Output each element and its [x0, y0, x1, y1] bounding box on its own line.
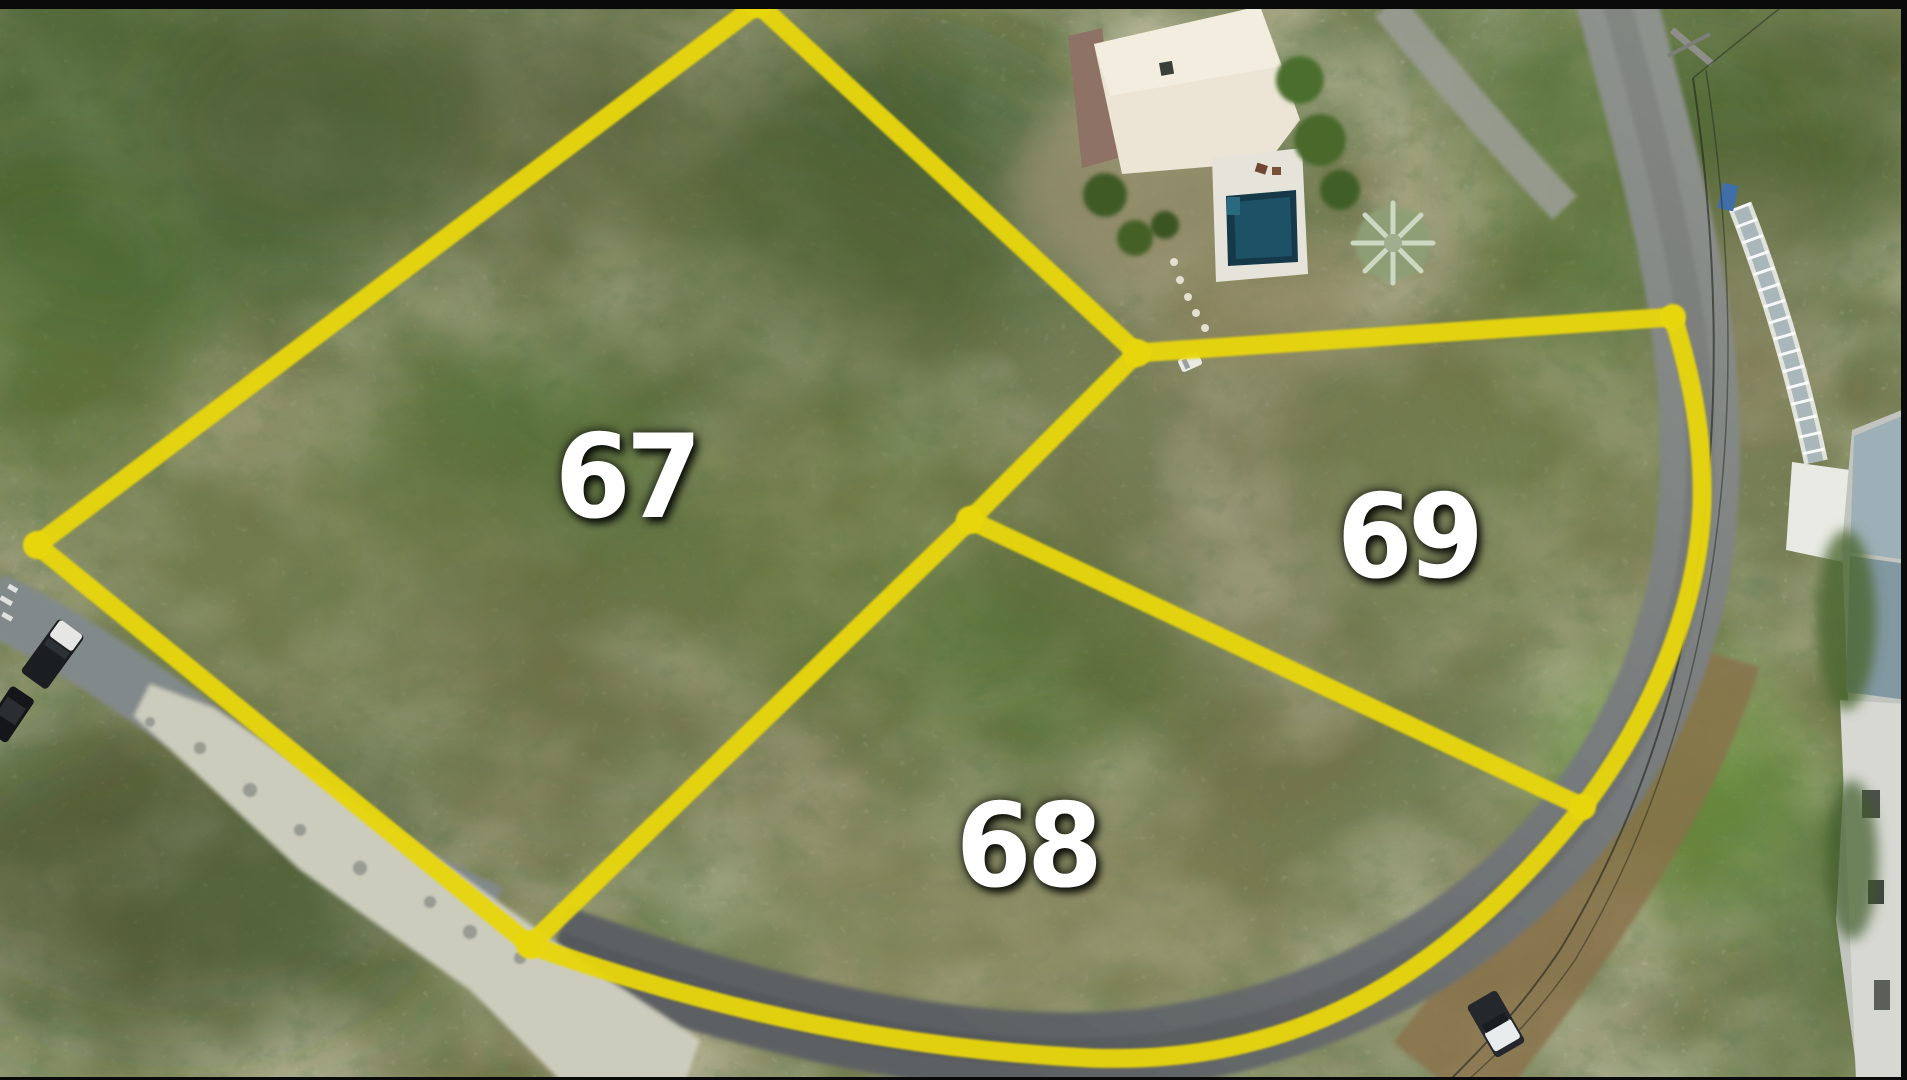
- roof-vent: [1159, 61, 1174, 76]
- lot-68-label: 68: [956, 789, 1098, 905]
- building-roof-upper: [1850, 414, 1907, 560]
- letterbox-top: [0, 0, 1907, 9]
- lot-69-label: 69: [1337, 480, 1479, 596]
- aerial-parcel-photo: 67 68 69: [0, 0, 1907, 1080]
- lot-67-label: 67: [555, 420, 697, 536]
- patio-furniture: [1272, 167, 1281, 175]
- pool-water: [1234, 197, 1292, 259]
- palm-tree: [1353, 203, 1433, 283]
- photo-canvas: [0, 0, 1907, 1080]
- pool-steps: [1227, 197, 1240, 215]
- letterbox-right: [1901, 0, 1907, 1080]
- building-window: [1874, 980, 1890, 1010]
